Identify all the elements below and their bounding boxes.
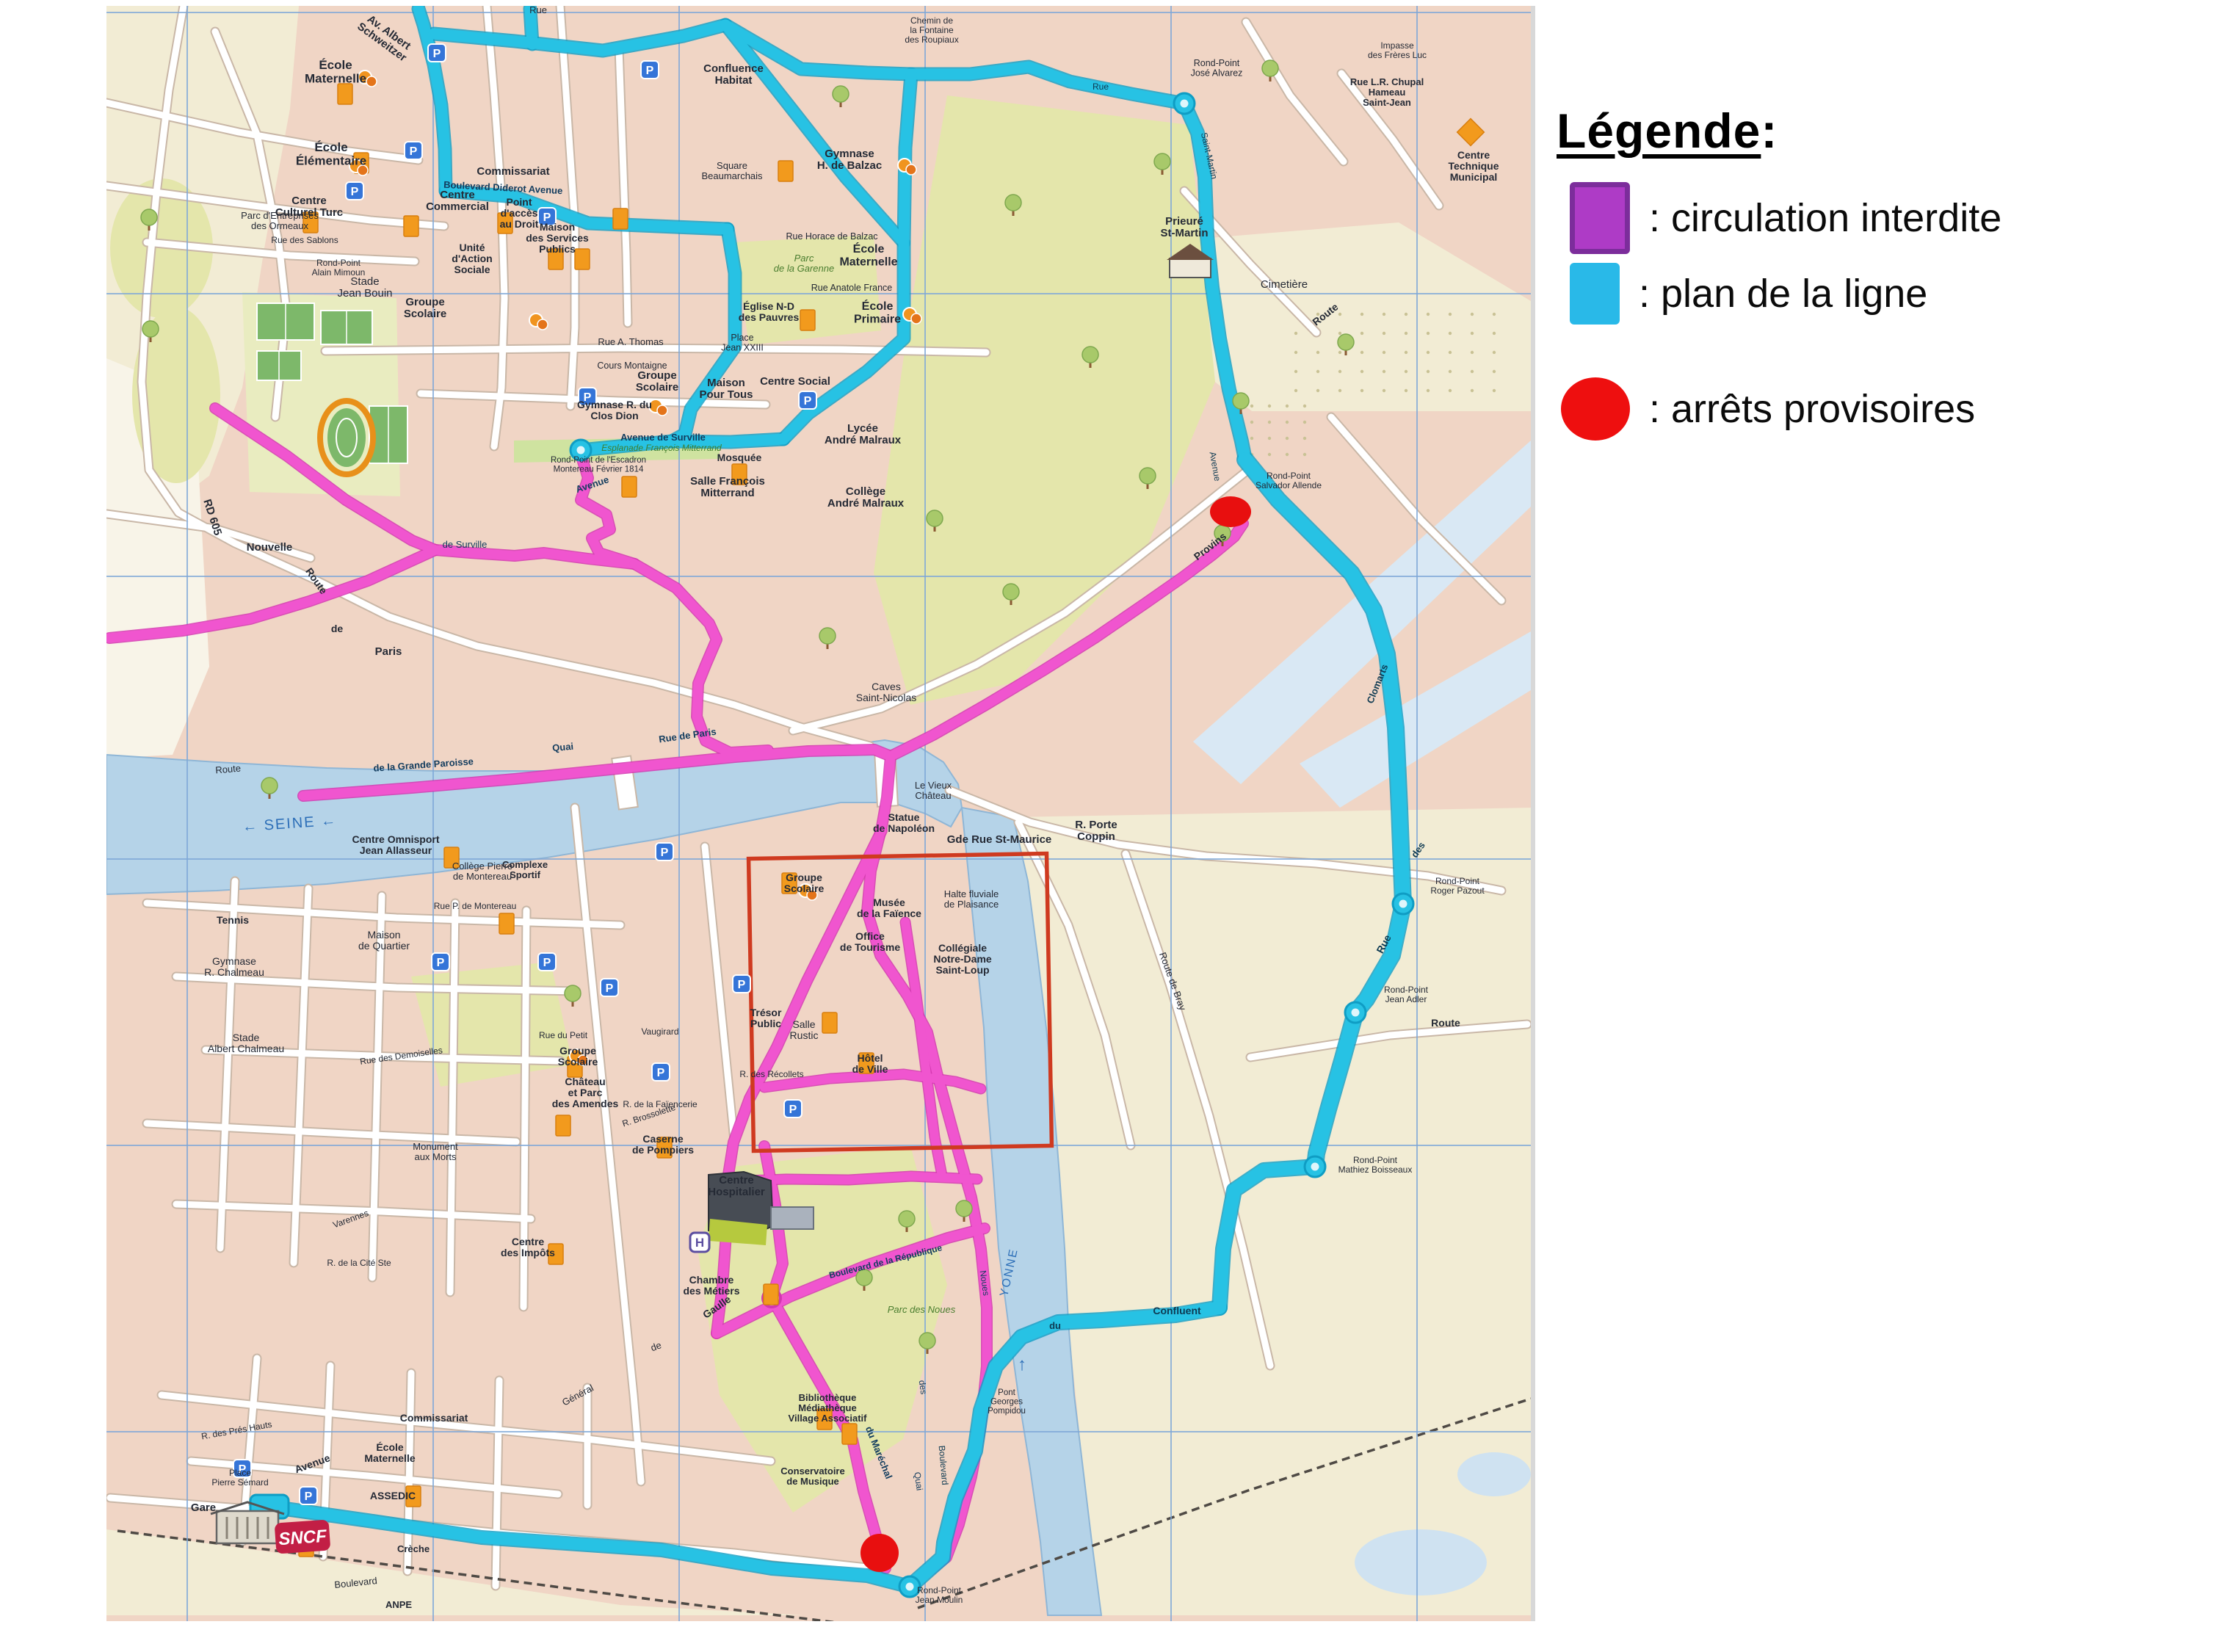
- hospital-annex: [771, 1207, 814, 1229]
- roundabout-center: [577, 446, 585, 454]
- map-label: SalleRustic: [790, 1018, 819, 1041]
- public-building-icon: [613, 209, 628, 229]
- parking-letter: P: [410, 145, 418, 158]
- field-dot: [1493, 351, 1496, 354]
- map-label: GroupeScolaire: [636, 369, 678, 394]
- legend-item-circulation-interdite: : circulation interdite: [1570, 182, 2001, 254]
- field-dot: [1338, 351, 1341, 354]
- legend-label-circulation-interdite: : circulation interdite: [1649, 195, 2001, 241]
- map-label: Gde Rue St-Maurice: [947, 833, 1052, 846]
- legend-title-colon: :: [1761, 104, 1778, 158]
- map-label: Parc des Noues: [888, 1304, 956, 1315]
- field-dot: [1405, 351, 1407, 354]
- cyan-square-swatch: [1570, 263, 1620, 325]
- public-building-icon: [764, 1284, 778, 1305]
- map-label: Rond-PointJean Moulin: [916, 1585, 963, 1605]
- field-dot: [1250, 437, 1253, 440]
- map-label: des: [917, 1380, 930, 1395]
- field-dot: [1383, 313, 1385, 316]
- roundabout-center: [1352, 1009, 1360, 1017]
- school-icon: [906, 164, 916, 175]
- map-canvas[interactable]: PPPPPPPPPPPPPPPPHSNCFAv. AlbertSchweitze…: [106, 6, 1531, 1621]
- field-dot: [1303, 453, 1306, 456]
- purple-square-swatch: [1570, 182, 1630, 254]
- parking-letter: P: [789, 1104, 797, 1116]
- map-label: Hôtelde Ville: [852, 1052, 888, 1075]
- map-label: Tennis: [217, 914, 249, 926]
- parking-letter: P: [305, 1490, 313, 1503]
- field-dot: [1338, 332, 1341, 335]
- map-label: Paris: [375, 645, 402, 658]
- map-label: Nouvelle: [247, 541, 293, 554]
- legend-item-plan-de-la-ligne: : plan de la ligne: [1570, 263, 1927, 325]
- field-dot: [1493, 370, 1496, 373]
- public-building-icon: [842, 1424, 857, 1444]
- tree-icon: [1003, 584, 1019, 600]
- map-label: ANPE: [385, 1599, 412, 1610]
- school-icon: [537, 319, 548, 330]
- tree-icon: [261, 778, 278, 794]
- map-label: R. PorteCoppin: [1075, 819, 1117, 843]
- tree-icon: [956, 1200, 972, 1217]
- map-label: Cimetière: [1261, 278, 1308, 291]
- map-label: Rue Horace de Balzac: [786, 231, 877, 242]
- field-dot: [1427, 370, 1430, 373]
- tree-icon: [1262, 60, 1278, 76]
- map-label: Quai: [552, 741, 574, 753]
- map-label: Rond-Point de l'EscadronMontereau Févrie…: [551, 456, 646, 474]
- map-label: Conservatoirede Musique: [780, 1466, 844, 1487]
- school-icon: [911, 314, 921, 324]
- parking-letter: P: [543, 957, 551, 969]
- field-dot: [1250, 421, 1253, 424]
- tree-icon: [899, 1211, 915, 1227]
- map-label: Route: [215, 763, 242, 776]
- field-dot: [1361, 313, 1363, 316]
- public-building-icon: [622, 477, 637, 497]
- field-dot: [1449, 351, 1452, 354]
- parking-letter: P: [606, 982, 614, 995]
- map-label: PrieuréSt-Martin: [1161, 215, 1209, 239]
- city-map[interactable]: PPPPPPPPPPPPPPPPHSNCFAv. AlbertSchweitze…: [106, 6, 1535, 1621]
- field-dot: [1471, 389, 1474, 392]
- map-label: GymnaseR. Chalmeau: [204, 955, 264, 978]
- tree-icon: [1140, 468, 1156, 484]
- field-dot: [1316, 389, 1319, 392]
- map-label: MaisonPour Tous: [699, 377, 753, 401]
- field-dot: [1427, 389, 1430, 392]
- field-dot: [1286, 421, 1289, 424]
- field-dot: [1294, 389, 1297, 392]
- field-dot: [1361, 389, 1363, 392]
- field-dot: [1268, 421, 1271, 424]
- public-building-icon: [338, 84, 352, 104]
- field-dot: [1449, 370, 1452, 373]
- stadium-field: [327, 408, 366, 467]
- tree-icon: [1005, 195, 1021, 211]
- map-label: BibliothèqueMédiathèqueVillage Associati…: [789, 1392, 868, 1424]
- public-building-icon: [822, 1012, 837, 1033]
- tree-icon: [142, 321, 159, 337]
- tree-icon: [141, 209, 157, 225]
- field-dot: [1427, 332, 1430, 335]
- field-dot: [1316, 370, 1319, 373]
- legend-title: Légende:: [1557, 103, 1778, 159]
- field-dot: [1294, 332, 1297, 335]
- map-label: R. des Récollets: [739, 1069, 803, 1079]
- field-dot: [1471, 370, 1474, 373]
- priory-building: [1170, 258, 1211, 278]
- map-label: TrésorPublic: [750, 1007, 782, 1029]
- map-label: Centre Social: [760, 375, 830, 388]
- field-dot: [1268, 405, 1271, 407]
- field-dot: [1286, 405, 1289, 407]
- temporary-stop-marker: [860, 1534, 899, 1572]
- map-label: Rue: [1093, 81, 1109, 92]
- parking-letter: P: [646, 65, 654, 77]
- map-label: Salle FrançoisMitterrand: [690, 475, 765, 499]
- map-label: Chemin dela Fontainedes Roupiaux: [905, 15, 958, 45]
- map-label: de Surville: [443, 539, 488, 550]
- map-label: Rue: [529, 6, 547, 15]
- roundabout-center: [1311, 1163, 1319, 1171]
- map-label: Confluent: [1153, 1305, 1201, 1316]
- map-label: Esplanade François Mitterrand: [601, 443, 722, 453]
- map-label: Rond-PointAlain Mimoun: [312, 258, 366, 278]
- map-label: Halte fluvialede Plaisance: [944, 888, 999, 910]
- parking-letter: P: [351, 186, 359, 198]
- public-building-icon: [499, 913, 514, 934]
- field-dot: [1338, 370, 1341, 373]
- tree-icon: [565, 985, 581, 1001]
- roundabout-center: [906, 1583, 914, 1591]
- map-label: Rond-PointRoger Pazout: [1430, 876, 1485, 896]
- field-dot: [1338, 313, 1341, 316]
- field-dot: [1471, 313, 1474, 316]
- legend-item-arrets-provisoires: : arrêts provisoires: [1570, 377, 1975, 441]
- map-label: Mosquée: [717, 452, 762, 463]
- parking-letter: P: [661, 847, 669, 859]
- map-label: Parc d'Entreprisesdes Ormeaux: [241, 210, 319, 231]
- field-dot: [1383, 370, 1385, 373]
- street: [407, 1373, 411, 1571]
- field-dot: [1405, 332, 1407, 335]
- field-dot: [1405, 389, 1407, 392]
- map-label: du: [1049, 1320, 1061, 1331]
- field-dot: [1294, 351, 1297, 354]
- tree-icon: [1338, 334, 1354, 350]
- map-label: Centre OmnisportJean Allasseur: [352, 833, 439, 856]
- map-label: GroupeScolaire: [558, 1045, 598, 1068]
- map-label: Commissariat: [477, 165, 549, 178]
- map-label: Rue des Sablons: [271, 235, 338, 245]
- public-building-icon: [778, 161, 793, 181]
- field-dot: [1405, 313, 1407, 316]
- field-dot: [1471, 332, 1474, 335]
- public-building-icon: [575, 249, 590, 269]
- street: [496, 1380, 499, 1586]
- map-label: Route: [1431, 1017, 1460, 1029]
- map-label: Église N-Ddes Pauvres: [739, 300, 800, 323]
- map-label: Le VieuxChâteau: [915, 780, 952, 801]
- map-label: Chambredes Métiers: [683, 1274, 739, 1297]
- map-label: CollégialeNotre-DameSaint-Loup: [933, 942, 992, 976]
- field-dot: [1383, 332, 1385, 335]
- legend-title-text: Légende: [1557, 104, 1761, 158]
- school-icon: [366, 76, 377, 87]
- legend-label-plan-de-la-ligne: : plan de la ligne: [1639, 271, 1927, 316]
- field-dot: [1361, 332, 1363, 335]
- temporary-stop-marker: [1210, 496, 1251, 527]
- map-label: Monumentaux Morts: [413, 1141, 458, 1162]
- parking-letter: P: [804, 395, 812, 407]
- field-dot: [1316, 351, 1319, 354]
- screenshot-root: PPPPPPPPPPPPPPPPHSNCFAv. AlbertSchweitze…: [0, 0, 2221, 1652]
- legend-label-arrets-provisoires: : arrêts provisoires: [1649, 386, 1975, 432]
- field-dot: [1361, 351, 1363, 354]
- field-dot: [1493, 332, 1496, 335]
- parking-letter: P: [657, 1067, 665, 1079]
- field-dot: [1286, 437, 1289, 440]
- school-icon: [657, 405, 667, 416]
- field-dot: [1427, 351, 1430, 354]
- map-label: Commissariat: [400, 1412, 468, 1424]
- parking-letter: P: [738, 979, 746, 991]
- map-label: de: [331, 623, 344, 634]
- field-dot: [1303, 405, 1306, 407]
- field-dot: [1449, 389, 1452, 392]
- map-label: Rond-PointJean Adler: [1384, 985, 1429, 1004]
- tree-icon: [1233, 393, 1249, 409]
- pond: [1355, 1529, 1487, 1595]
- field-dot: [1383, 351, 1385, 354]
- field-dot: [1294, 370, 1297, 373]
- map-label: GroupeScolaire: [784, 872, 825, 894]
- map-label: Crèche: [397, 1543, 430, 1554]
- map-label: Rue du Petit: [539, 1030, 588, 1040]
- parking-letter: P: [433, 48, 441, 60]
- public-building-icon: [556, 1115, 570, 1136]
- map-label: R. de la Cité Ste: [327, 1258, 391, 1268]
- roundabout-center: [1399, 900, 1407, 908]
- field-dot: [1303, 437, 1306, 440]
- parking-letter: P: [437, 957, 445, 969]
- field-dot: [1268, 453, 1271, 456]
- field-dot: [1471, 351, 1474, 354]
- tree-icon: [819, 628, 836, 644]
- map-label: Avenue de Surville: [620, 432, 706, 443]
- tree-icon: [1082, 347, 1098, 363]
- public-building-icon: [800, 310, 815, 330]
- tree-icon: [833, 86, 849, 102]
- map-label: Rue Anatole France: [811, 283, 893, 293]
- field-dot: [1383, 389, 1385, 392]
- sncf-logo-text: SNCF: [278, 1526, 328, 1550]
- field-dot: [1361, 370, 1363, 373]
- tree-icon: [919, 1333, 935, 1349]
- field-dot: [1427, 313, 1430, 316]
- map-label: ↑: [1018, 1355, 1026, 1374]
- map-label: Rond-PointJosé Alvarez: [1191, 58, 1243, 79]
- field-dot: [1286, 453, 1289, 456]
- pond: [1457, 1452, 1531, 1496]
- map-label: Rue P. de Montereau: [434, 901, 517, 911]
- tree-icon: [1154, 153, 1170, 170]
- public-building-icon: [404, 216, 419, 236]
- map-label: Rue A. Thomas: [598, 336, 664, 347]
- map-label: Vaugirard: [641, 1026, 678, 1037]
- field-dot: [1250, 405, 1253, 407]
- field-dot: [1449, 313, 1452, 316]
- map-label: GroupeScolaire: [404, 296, 446, 320]
- field-dot: [1449, 332, 1452, 335]
- map-label: ASSEDIC: [370, 1490, 416, 1501]
- field-dot: [1338, 389, 1341, 392]
- map-label: Gare: [191, 1501, 216, 1514]
- map-label: GymnaseH. de Balzac: [817, 148, 882, 172]
- field-dot: [1303, 421, 1306, 424]
- red-ellipse-swatch: [1561, 377, 1630, 441]
- field-dot: [1493, 389, 1496, 392]
- roundabout-center: [1181, 100, 1189, 108]
- land-zone: [1013, 808, 1531, 1615]
- field-dot: [1268, 437, 1271, 440]
- field-dot: [1405, 370, 1407, 373]
- tree-icon: [927, 510, 943, 526]
- hospital-h-letter: H: [695, 1236, 704, 1250]
- field-dot: [1493, 313, 1496, 316]
